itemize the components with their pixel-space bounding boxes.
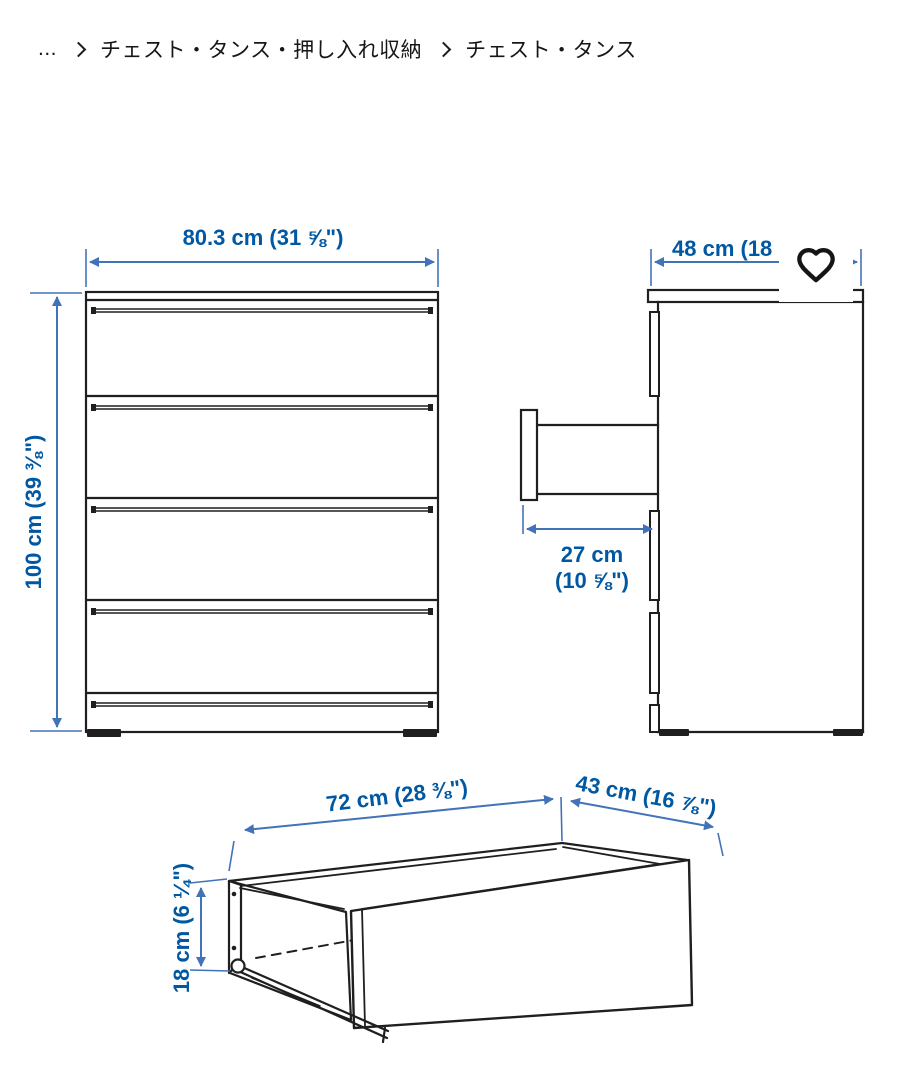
drawer-height-dimension-line xyxy=(190,879,230,971)
front-height-label: 100 cm (39 ⅜") xyxy=(21,435,47,590)
open-drawer-depth-dimension-line xyxy=(523,505,652,534)
open-drawer-depth-line2: (10 ⅝") xyxy=(555,568,629,594)
chevron-right-icon xyxy=(71,41,87,57)
breadcrumb: ... チェスト・タンス・押し入れ収納 チェスト・タンス xyxy=(38,34,637,64)
product-dimensions-page: ... チェスト・タンス・押し入れ収納 チェスト・タンス xyxy=(0,0,898,1080)
side-view-drawing xyxy=(521,290,863,736)
front-view-drawing xyxy=(86,292,438,737)
breadcrumb-item-storage[interactable]: チェスト・タンス・押し入れ収納 xyxy=(100,34,422,64)
chevron-right-icon xyxy=(436,41,452,57)
open-drawer-depth-label: 27 cm (10 ⅝") xyxy=(555,542,629,594)
open-drawer-depth-line1: 27 cm xyxy=(555,542,629,568)
breadcrumb-collapsed[interactable]: ... xyxy=(38,37,57,61)
favorite-button[interactable] xyxy=(779,228,853,302)
front-width-label: 80.3 cm (31 ⅝") xyxy=(88,225,438,251)
drawer-height-label: 18 cm (6 ¼") xyxy=(169,863,195,993)
breadcrumb-item-chests[interactable]: チェスト・タンス xyxy=(465,34,637,64)
front-width-dimension-line xyxy=(86,249,438,287)
dimension-diagram xyxy=(0,0,898,1080)
side-depth-label: 48 cm (18 xyxy=(672,236,772,262)
heart-icon xyxy=(796,247,836,284)
drawer-view-drawing xyxy=(229,843,692,1042)
